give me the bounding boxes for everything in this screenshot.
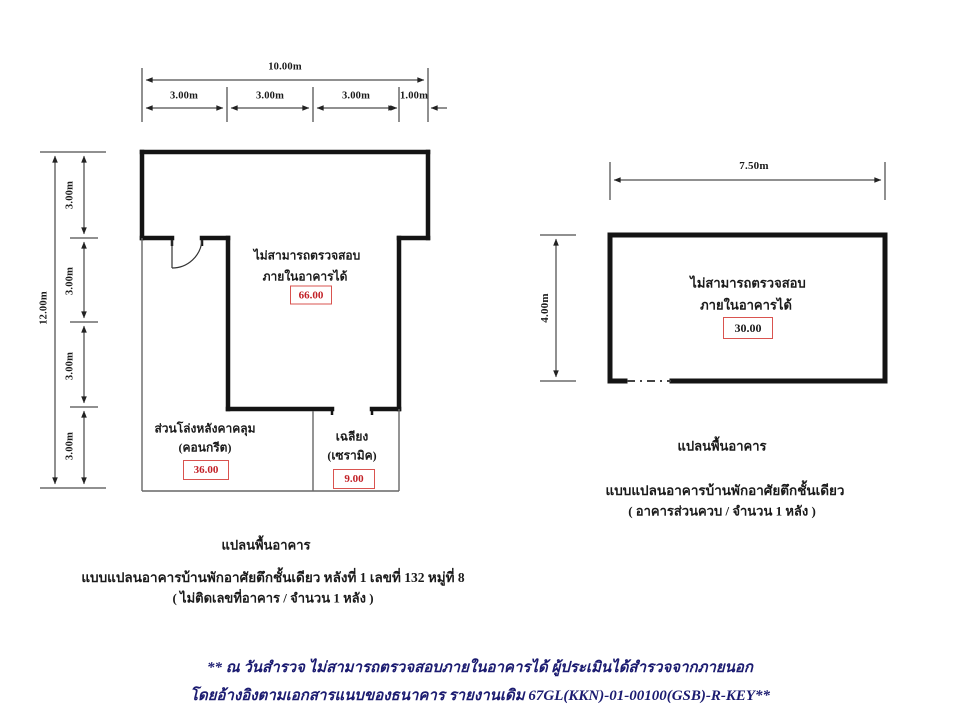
floor-plan-sheet: 10.00m 3.00m 3.00m 3.00m 1.00m 12.00m 3.… <box>0 0 960 720</box>
left-plan-caption-line2: ( ไม่ติดเลขที่อาคาร / จำนวน 1 หลัง ) <box>172 588 373 609</box>
main-room-area-box: 66.00 <box>290 286 332 305</box>
dim-label-width-seg-4: 1.00m <box>400 91 428 102</box>
dim-label-height-seg-1: 3.00m <box>65 181 76 209</box>
open-area-label-line2: (คอนกรีต) <box>179 439 232 458</box>
footer-note-line1: ** ณ วันสำรวจ ไม่สามารถตรวจสอบภายในอาคาร… <box>0 655 960 679</box>
dim-label-height-seg-3: 3.00m <box>65 352 76 380</box>
open-area-label-line1: ส่วนโล่งหลังคาคลุม <box>154 420 255 439</box>
porch-label-line1: เฉลียง <box>336 428 369 447</box>
open-area-area-value: 36.00 <box>194 464 219 476</box>
dim-label-total-width-right-plan: 7.50m <box>739 160 768 172</box>
dim-label-total-width-left-plan: 10.00m <box>268 62 302 73</box>
dim-label-width-seg-2: 3.00m <box>256 91 284 102</box>
porch-area-value: 9.00 <box>344 473 363 485</box>
dim-label-total-height-right-plan: 4.00m <box>539 293 551 322</box>
right-plan-caption-title: แปลนพื้นอาคาร <box>677 436 766 457</box>
dim-label-width-seg-1: 3.00m <box>170 91 198 102</box>
dim-label-height-seg-4: 3.00m <box>65 432 76 460</box>
left-plan-caption-title: แปลนพื้นอาคาร <box>221 535 310 556</box>
dim-label-width-seg-3: 3.00m <box>342 91 370 102</box>
right-main-room-note-line2: ภายในอาคารได้ <box>700 295 792 316</box>
door-swing-icon <box>172 240 202 268</box>
main-room-note-line2: ภายในอาคารได้ <box>263 268 348 287</box>
right-main-room-area-box: 30.00 <box>723 317 773 339</box>
dim-label-height-seg-2: 3.00m <box>65 267 76 295</box>
right-plan-dimensions <box>540 162 885 381</box>
right-main-room-area-value: 30.00 <box>735 321 762 336</box>
open-area-area-box: 36.00 <box>183 460 229 480</box>
left-plan-caption-line1: แบบแปลนอาคารบ้านพักอาศัยตึกชั้นเดียว หลั… <box>81 566 464 588</box>
right-plan-caption-line2: ( อาคารส่วนควบ / จำนวน 1 หลัง ) <box>628 501 816 522</box>
main-room-note-line1: ไม่สามารถตรวจสอบ <box>254 247 361 266</box>
right-plan-caption-line1: แบบแปลนอาคารบ้านพักอาศัยตึกชั้นเดียว <box>606 479 845 501</box>
footer-note-line2: โดยอ้างอิงตามเอกสารแนบของธนาคาร รายงานเด… <box>0 683 960 707</box>
main-room-area-value: 66.00 <box>299 289 324 301</box>
porch-area-box: 9.00 <box>333 469 375 489</box>
plan-linework <box>0 0 960 720</box>
dim-label-total-height-left-plan: 12.00m <box>39 291 50 325</box>
porch-label-line2: (เซรามิค) <box>327 447 376 466</box>
right-main-room-note-line1: ไม่สามารถตรวจสอบ <box>690 273 805 294</box>
